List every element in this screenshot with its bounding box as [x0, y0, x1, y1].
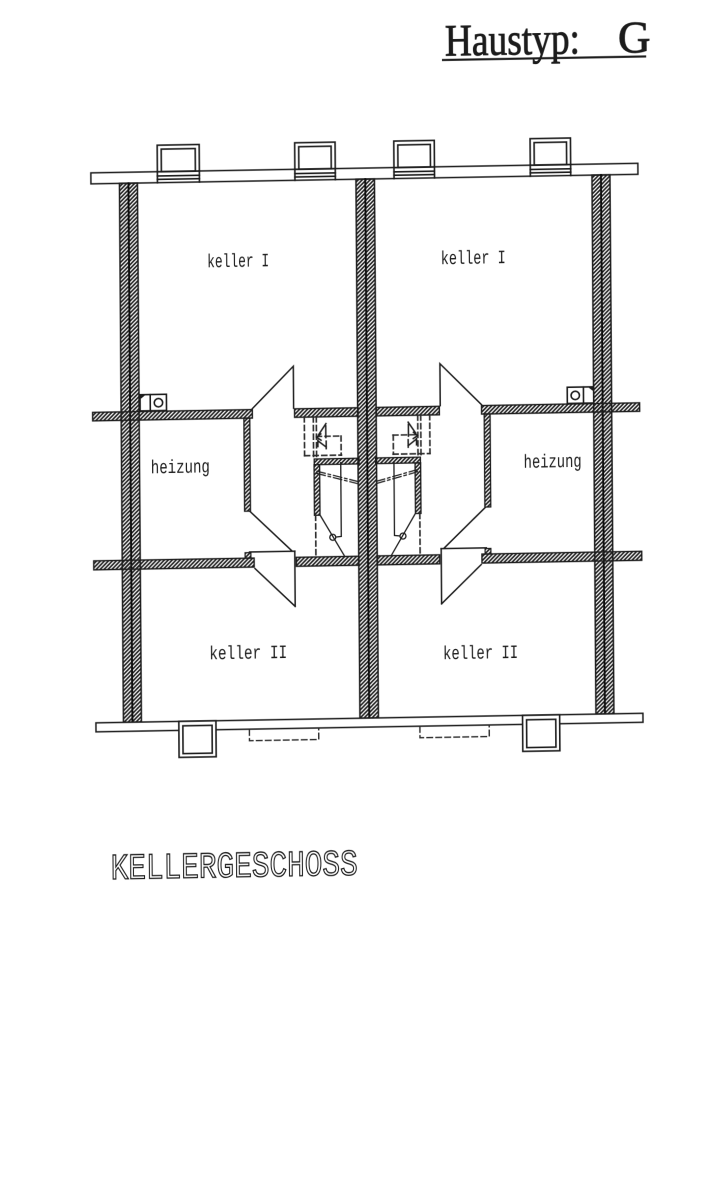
svg-text:G: G	[618, 12, 651, 63]
svg-text:keller I: keller I	[207, 250, 269, 273]
svg-text:keller II: keller II	[443, 642, 518, 665]
svg-text:heizung: heizung	[151, 456, 210, 479]
svg-text:keller II: keller II	[209, 642, 287, 665]
svg-text:heizung: heizung	[524, 451, 582, 474]
svg-text:keller I: keller I	[441, 247, 506, 270]
svg-text:KELLERGESCHOSS: KELLERGESCHOSS	[111, 845, 358, 890]
